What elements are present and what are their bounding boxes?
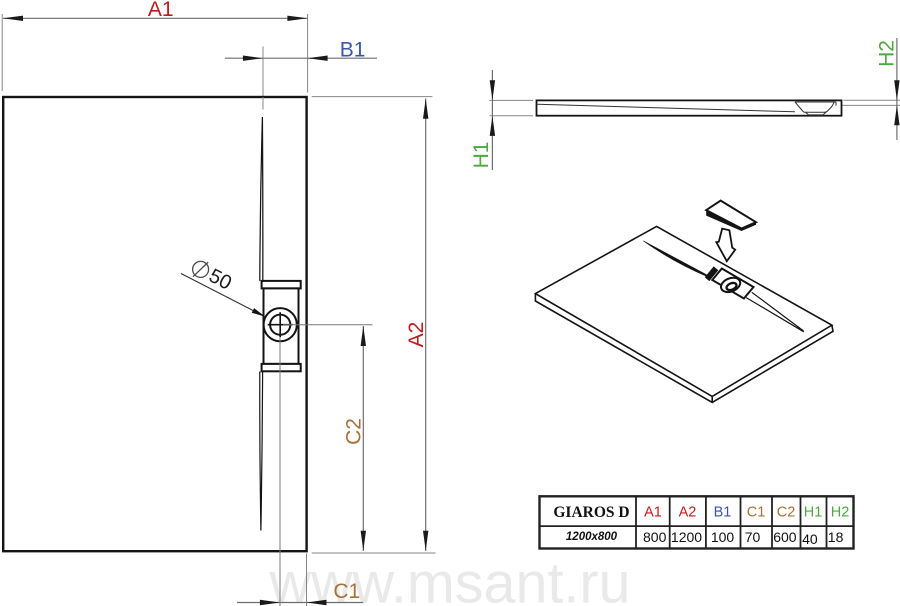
svg-text:A2: A2 — [405, 322, 428, 348]
svg-text:H2: H2 — [876, 40, 899, 67]
svg-text:GIAROS D: GIAROS D — [553, 504, 629, 521]
svg-text:B1: B1 — [714, 504, 732, 520]
svg-text:C2: C2 — [777, 504, 796, 520]
svg-text:600: 600 — [773, 529, 797, 545]
svg-text:A1: A1 — [644, 504, 662, 520]
svg-text:1200: 1200 — [671, 529, 702, 545]
svg-text:C2: C2 — [343, 418, 366, 445]
svg-text:800: 800 — [643, 529, 667, 545]
svg-text:70: 70 — [745, 529, 761, 545]
svg-text:H2: H2 — [831, 504, 850, 520]
svg-text:18: 18 — [828, 529, 844, 545]
svg-text:1200x800: 1200x800 — [566, 531, 618, 543]
svg-text:C1: C1 — [747, 504, 766, 520]
svg-text:C1: C1 — [333, 580, 360, 603]
svg-text:H1: H1 — [470, 142, 493, 169]
svg-text:B1: B1 — [340, 38, 366, 61]
svg-text:A1: A1 — [148, 0, 174, 21]
svg-text:www.msant.ru: www.msant.ru — [268, 552, 630, 606]
svg-text:A2: A2 — [679, 504, 697, 520]
svg-text:40: 40 — [802, 531, 818, 547]
svg-text:100: 100 — [711, 529, 735, 545]
svg-text:H1: H1 — [804, 504, 823, 520]
